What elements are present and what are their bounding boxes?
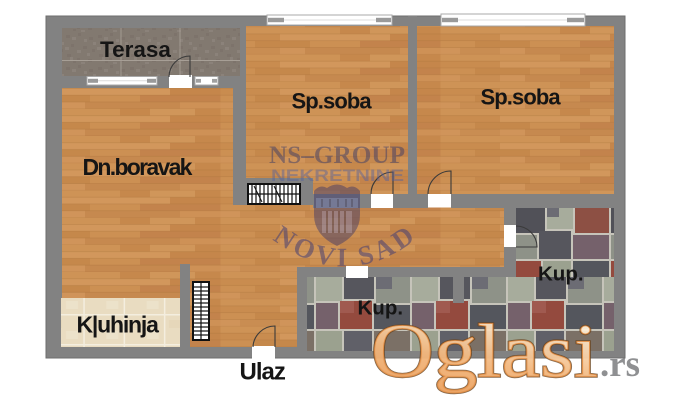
svg-text:Sp.soba: Sp.soba [481, 85, 562, 110]
svg-text:.rs: .rs [600, 344, 640, 385]
svg-text:Terasa: Terasa [100, 37, 171, 62]
svg-text:K|uhinja: K|uhinja [77, 312, 160, 338]
svg-text:Ulaz: Ulaz [240, 359, 286, 386]
svg-text:NS–GROUP: NS–GROUP [269, 142, 405, 169]
svg-text:Kup.: Kup. [538, 263, 584, 286]
svg-text:NEKRETNINE: NEKRETNINE [271, 166, 404, 185]
svg-text:Sp.soba: Sp.soba [292, 89, 373, 114]
svg-text:Dn.boravak: Dn.boravak [83, 154, 193, 180]
svg-text:Oglasi: Oglasi [371, 310, 598, 394]
